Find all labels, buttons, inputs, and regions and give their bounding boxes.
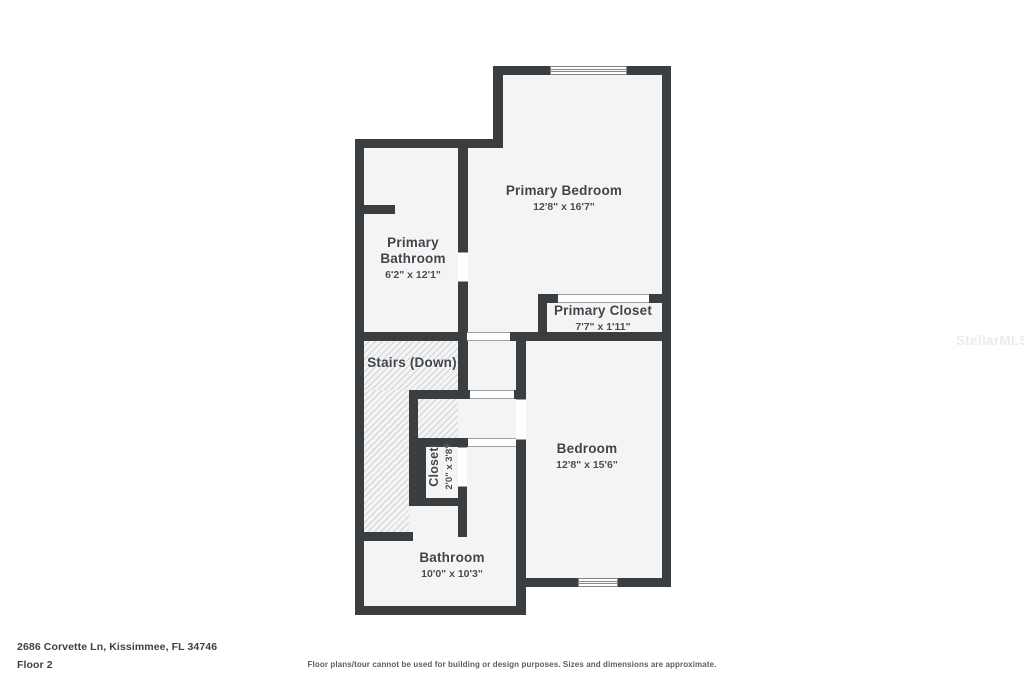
- room-dims: 12'8" x 15'6": [556, 459, 618, 471]
- address-text: 2686 Corvette Ln, Kissimmee, FL 34746: [17, 641, 217, 653]
- wall-primary-bathroom-top: [355, 139, 503, 148]
- wall-toilet-stub: [364, 205, 395, 214]
- room-name: Closet: [427, 447, 442, 486]
- stellar-mls-watermark: StellarMLS: [956, 333, 1024, 348]
- room-name: Bathroom: [419, 550, 484, 566]
- wall-bedroom-left-lower: [516, 440, 526, 615]
- room-dims: 12'8" x 16'7": [533, 201, 595, 213]
- room-name: Bedroom: [557, 441, 618, 457]
- room-name: Primary Bathroom: [375, 235, 451, 267]
- wall-primary-closet-left: [538, 294, 547, 341]
- bedroom-label: Bedroom 12'8" x 15'6": [556, 441, 618, 471]
- wall-plan-right: [662, 66, 671, 587]
- wall-closet-left: [417, 438, 426, 506]
- primary-bathroom-door-opening: [458, 252, 468, 282]
- primary-bedroom-door-opening: [467, 332, 510, 341]
- bedroom-window: [578, 578, 618, 587]
- bedroom-door-opening: [516, 399, 526, 440]
- window-pane: [551, 69, 626, 72]
- room-dims: 6'2" x 12'1": [385, 269, 441, 281]
- primary-bedroom-window: [550, 66, 627, 75]
- stairs-hatch-run: [364, 390, 409, 532]
- room-name: Stairs (Down): [367, 355, 457, 371]
- closet-door-opening: [458, 447, 467, 487]
- wall-bathroom-bottom: [355, 606, 526, 615]
- wall-bedroom-left-upper: [516, 332, 526, 395]
- wall-primary-bedroom-left-upper: [493, 66, 503, 148]
- primary-bathroom-label: Primary Bathroom 6'2" x 12'1": [375, 235, 451, 281]
- primary-bedroom-label: Primary Bedroom 12'8" x 16'7": [506, 183, 622, 213]
- landing-door-opening: [470, 390, 514, 399]
- disclaimer-text: Floor plans/tour cannot be used for buil…: [0, 660, 1024, 669]
- room-dims: 2'0" x 3'8": [444, 444, 455, 489]
- primary-closet-label: Primary Closet 7'7" x 1'11": [554, 303, 652, 333]
- stairs-label: Stairs (Down): [367, 355, 457, 371]
- primary-closet-slider-opening: [558, 294, 649, 303]
- closet-label: Closet 2'0" x 3'8": [427, 444, 455, 489]
- wall-middle: [355, 332, 671, 341]
- wall-closet-right-stub: [458, 487, 467, 537]
- room-name: Primary Closet: [554, 303, 652, 319]
- window-pane: [579, 581, 617, 584]
- hall-bathroom-opening: [468, 438, 516, 447]
- wall-plan-left: [355, 139, 364, 615]
- room-dims: 10'0" x 10'3": [421, 568, 483, 580]
- stairs-hatch-pocket: [418, 399, 458, 438]
- primary-bedroom-area-lower-left: [468, 148, 503, 332]
- room-dims: 7'7" x 1'11": [575, 321, 630, 333]
- floor-plan-page: Primary Bedroom 12'8" x 16'7" Primary Ba…: [0, 0, 1024, 682]
- room-name: Primary Bedroom: [506, 183, 622, 199]
- bathroom-label: Bathroom 10'0" x 10'3": [419, 550, 484, 580]
